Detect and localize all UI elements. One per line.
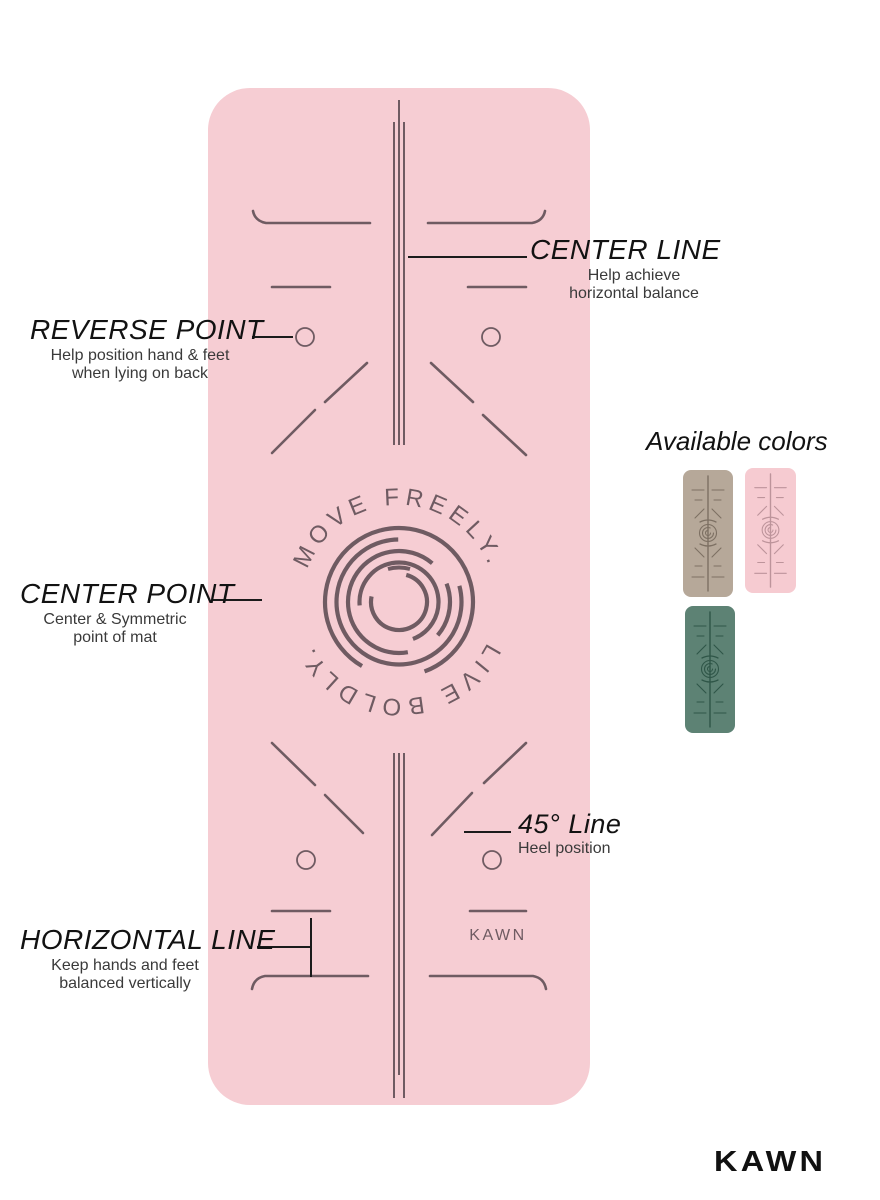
callout-center-point: CENTER POINT Center & Symmetric point of… <box>20 580 210 647</box>
horizontal-line-title: HORIZONTAL LINE <box>20 926 255 954</box>
center-point-title: CENTER POINT <box>20 580 210 608</box>
color-swatch-pink <box>745 468 796 593</box>
callout-horizontal-line: HORIZONTAL LINE Keep hands and feet bala… <box>20 926 255 993</box>
color-swatch-beige <box>683 470 733 597</box>
color-swatch-green <box>685 606 735 733</box>
center-line-desc: Help achieve horizontal balance <box>544 267 724 303</box>
reverse-point-desc: Help position hand & feet when lying on … <box>30 347 250 383</box>
available-colors-title: Available colors <box>646 426 828 457</box>
reverse-point-title: REVERSE POINT <box>30 316 250 344</box>
center-point-desc: Center & Symmetric point of mat <box>20 611 210 647</box>
horizontal-line-desc: Keep hands and feet balanced vertically <box>20 957 230 993</box>
45-line-desc: Heel position <box>518 840 621 858</box>
callout-45-line: 45° Line Heel position <box>518 811 621 858</box>
center-emblem: MOVE FREELY. LIVE BOLDLY. <box>288 484 510 721</box>
45-line-title: 45° Line <box>518 811 621 838</box>
center-line-marking <box>394 100 404 1098</box>
callout-center-line: CENTER LINE Help achieve horizontal bala… <box>530 236 730 303</box>
mat-brand-mark: KAWN <box>469 927 526 944</box>
page-root: { "mat": { "color": "#f6cdd3", "line_col… <box>0 0 880 1200</box>
center-line-title: CENTER LINE <box>530 236 730 264</box>
callout-reverse-point: REVERSE POINT Help position hand & feet … <box>30 316 250 383</box>
brand-logo: KAWN <box>714 1146 826 1179</box>
